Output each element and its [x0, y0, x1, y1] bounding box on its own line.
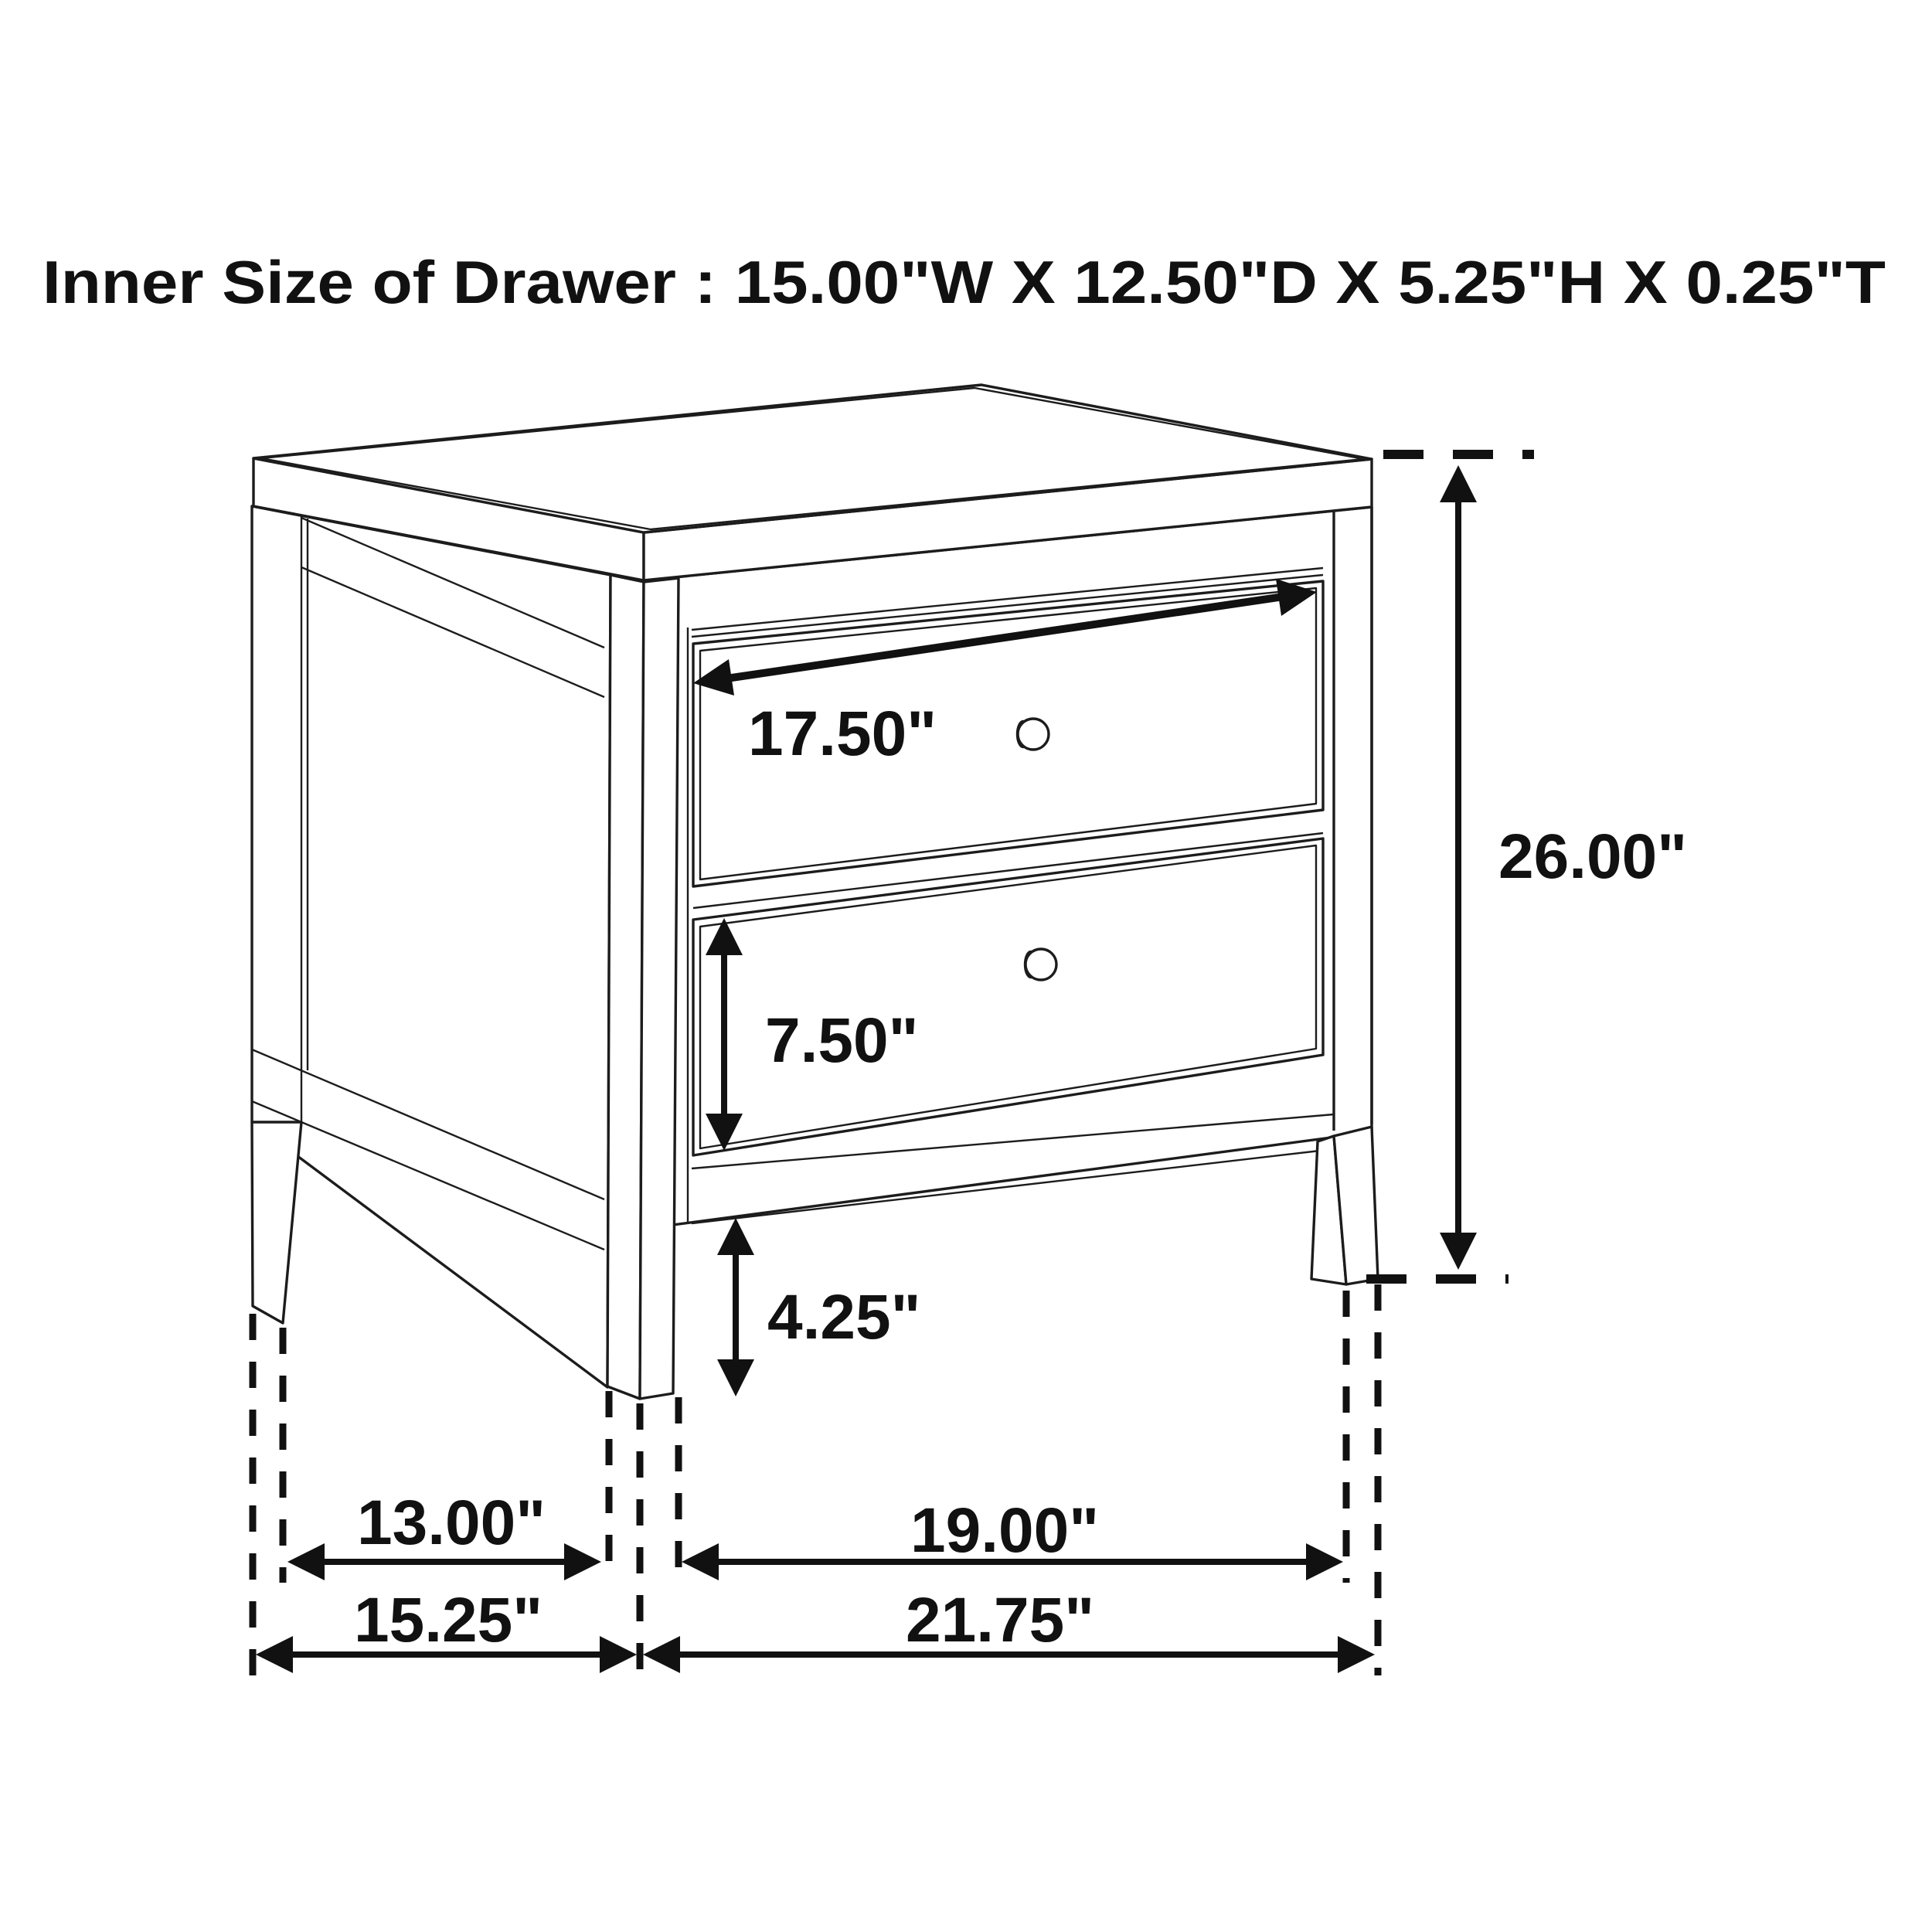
dim-label-drawer-height: 7.50" [765, 1005, 918, 1076]
drawer-1-knob [1017, 719, 1049, 750]
dim-label-side-inner-span: 13.00" [357, 1488, 546, 1558]
dim-label-drawer-width: 17.50" [748, 699, 937, 769]
dim-label-front-inner-span: 19.00" [910, 1495, 1099, 1566]
front-left-stile-front-face [640, 578, 679, 1399]
diagram-title: Inner Size of Drawer : 15.00"W X 12.50"D… [43, 248, 1886, 316]
dim-label-leg-height: 4.25" [767, 1282, 920, 1352]
drawer-2-knob [1025, 949, 1056, 980]
nightstand-dimension-diagram: Inner Size of Drawer : 15.00"W X 12.50"D… [0, 0, 1932, 1932]
dim-label-outer-depth: 15.25" [354, 1585, 543, 1655]
front-left-stile-side-face [607, 575, 644, 1399]
dim-label-overall-height: 26.00" [1498, 821, 1687, 892]
dim-label-outer-width: 21.75" [906, 1585, 1094, 1655]
